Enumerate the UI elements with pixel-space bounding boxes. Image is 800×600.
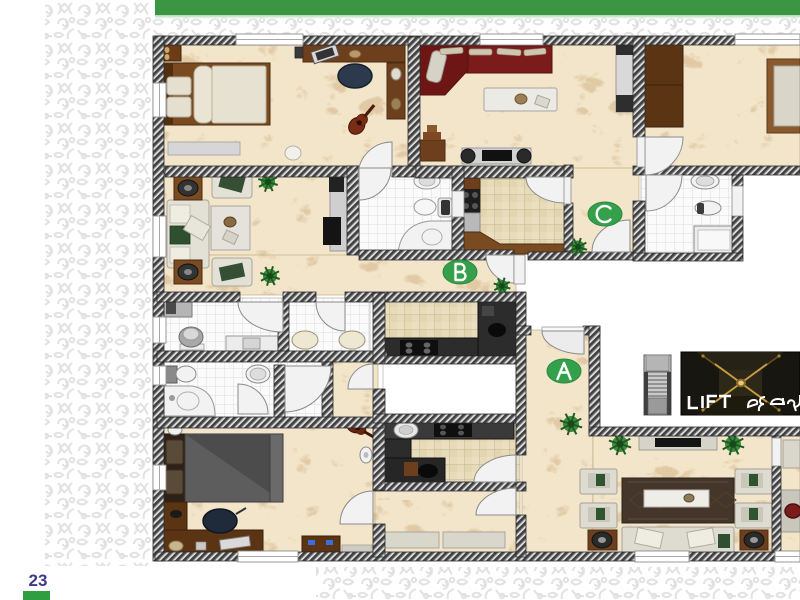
svg-text:23: 23	[29, 571, 48, 590]
